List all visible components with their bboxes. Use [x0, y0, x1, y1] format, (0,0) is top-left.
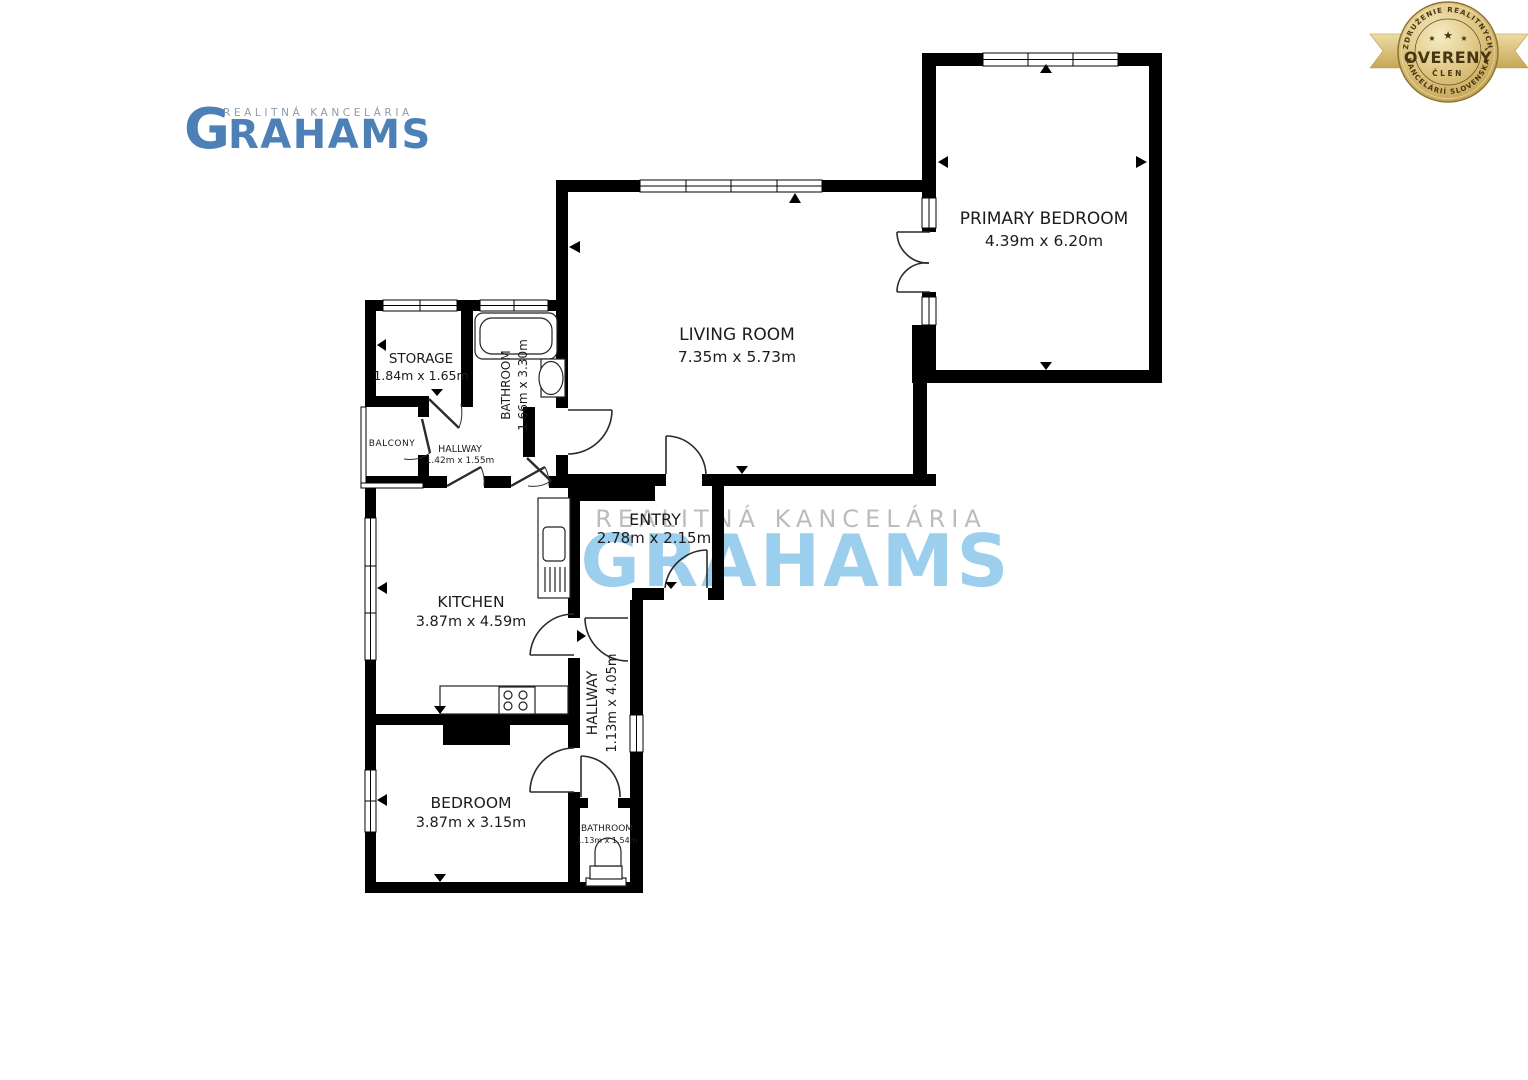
badge-star-right-icon: ★: [1460, 34, 1467, 43]
dims-entry: 2.78m x 2.15m: [597, 529, 711, 547]
badge-title: OVERENÝ: [1404, 48, 1492, 67]
badge-ribbon-right: [1494, 34, 1528, 68]
dims-hallway-small: 1.42m x 1.55m: [426, 456, 495, 466]
floorplan-page: REALITNÁ KANCELÁRIA GRAHAMS REALITNÁ KAN…: [0, 0, 1528, 1080]
label-hallway-small: HALLWAY: [438, 444, 482, 455]
floorplan-canvas: REALITNÁ KANCELÁRIA GRAHAMS REALITNÁ KAN…: [0, 0, 1528, 1080]
badge-star-left-icon: ★: [1428, 34, 1435, 43]
window-hallway: [630, 715, 643, 752]
label-bathroom-main: BATHROOM: [499, 350, 513, 419]
company-logo: REALITNÁ KANCELÁRIA G RAHAMS: [184, 97, 432, 162]
window-kitchen: [365, 518, 376, 660]
floorplan-drawing: PRIMARY BEDROOM 4.39m x 6.20m LIVING ROO…: [361, 53, 1162, 893]
wall-segments: [365, 53, 1162, 893]
dims-bathroom-main: 1.66m x 3.30m: [516, 339, 530, 431]
window-bathroom-main: [480, 300, 548, 311]
dims-bathroom-small: 1.13m x 1.54m: [576, 836, 637, 845]
door-storage: [429, 399, 462, 428]
label-kitchen: KITCHEN: [437, 593, 504, 611]
dims-primary-bedroom: 4.39m x 6.20m: [985, 232, 1103, 250]
door-hallway-to-kitchen: [530, 614, 574, 655]
door-hallway-small-to-kitchen: [447, 467, 484, 486]
label-bedroom: BEDROOM: [431, 794, 512, 812]
door-hallway-to-bedroom: [530, 748, 574, 792]
verified-member-badge: ZDRUŽENIE REALITNÝCH KANCELÁRIÍ SLOVENSK…: [1370, 2, 1528, 102]
window-bedroom-wall-upper: [922, 198, 936, 228]
window-storage: [383, 300, 457, 311]
label-hallway-main: HALLWAY: [585, 670, 601, 735]
window-primary-bedroom: [983, 53, 1118, 66]
label-storage: STORAGE: [389, 351, 453, 367]
badge-subtitle: ČLEN: [1432, 69, 1464, 78]
bathroom-sink: [539, 359, 565, 397]
window-bedroom: [365, 770, 376, 832]
door-bathroom-main-to-kitchen: [511, 467, 549, 486]
logo-brand-initial: G: [184, 97, 230, 162]
door-hallway-to-bathroom-small: [581, 756, 620, 797]
dims-hallway-main: 1.13m x 4.05m: [605, 653, 620, 752]
kitchen-sink-unit: [538, 498, 570, 598]
label-entry: ENTRY: [629, 510, 681, 529]
dims-living-room: 7.35m x 5.73m: [678, 348, 796, 366]
window-bedroom-wall-lower: [922, 297, 936, 325]
logo-brand-rest: RAHAMS: [228, 112, 432, 158]
door-entry-to-living: [666, 436, 706, 475]
toilet: [586, 838, 626, 886]
label-primary-bedroom: PRIMARY BEDROOM: [960, 209, 1129, 229]
badge-star-middle-icon: ★: [1443, 29, 1453, 42]
label-balcony: BALCONY: [369, 439, 415, 449]
label-living-room: LIVING ROOM: [679, 325, 795, 345]
label-bathroom-small: BATHROOM: [581, 824, 633, 834]
door-double-living-to-primary: [897, 232, 930, 292]
dims-storage: 1.84m x 1.65m: [373, 368, 468, 383]
dims-bedroom: 3.87m x 3.15m: [416, 815, 527, 831]
dims-kitchen: 3.87m x 4.59m: [416, 614, 527, 630]
window-living-room: [640, 180, 822, 192]
door-bathroom-to-living: [568, 410, 612, 454]
stove: [499, 687, 535, 714]
